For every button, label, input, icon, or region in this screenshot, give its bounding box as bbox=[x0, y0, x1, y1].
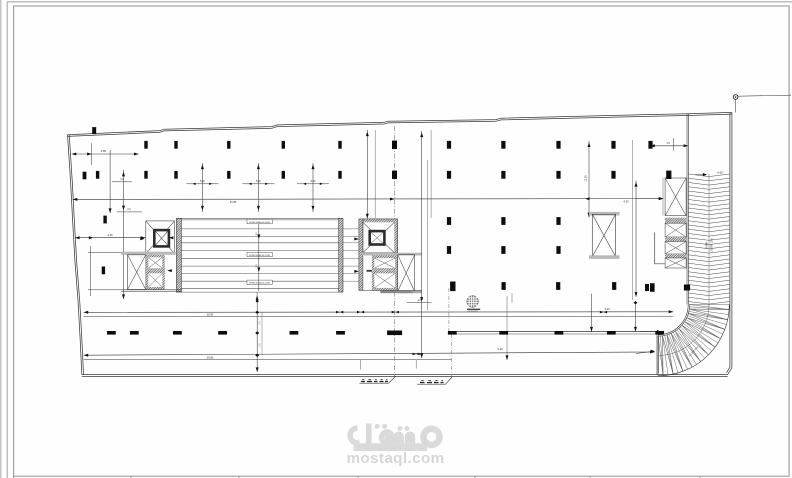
svg-text:3.20: 3.20 bbox=[604, 307, 610, 311]
svg-text:+0.60: +0.60 bbox=[717, 171, 724, 174]
svg-text:31.80: 31.80 bbox=[230, 200, 237, 204]
svg-text:2.45: 2.45 bbox=[107, 233, 113, 237]
svg-text:12.05: 12.05 bbox=[585, 175, 588, 182]
svg-text:5.00: 5.00 bbox=[256, 180, 261, 183]
svg-text:5.00: 5.00 bbox=[200, 180, 205, 183]
svg-text:25.60: 25.60 bbox=[207, 356, 214, 360]
svg-text:HORDI SLAB (45+5)CM: HORDI SLAB (45+5)CM bbox=[249, 221, 270, 224]
svg-text:5.10: 5.10 bbox=[497, 347, 503, 351]
svg-text:2.85: 2.85 bbox=[101, 149, 107, 153]
svg-text:SLOPE 10%: SLOPE 10% bbox=[712, 239, 714, 252]
svg-text:RAMP: RAMP bbox=[706, 241, 709, 248]
svg-text:5.00: 5.00 bbox=[311, 180, 316, 183]
svg-text:mostaql.com: mostaql.com bbox=[346, 450, 444, 467]
svg-text:4.30: 4.30 bbox=[623, 199, 629, 203]
svg-text:HORDI SLAB (45+5)CM: HORDI SLAB (45+5)CM bbox=[249, 282, 270, 285]
svg-text:25.60: 25.60 bbox=[207, 312, 214, 316]
svg-text:HORDI SLAB (45+5)CM: HORDI SLAB (45+5)CM bbox=[249, 254, 270, 257]
